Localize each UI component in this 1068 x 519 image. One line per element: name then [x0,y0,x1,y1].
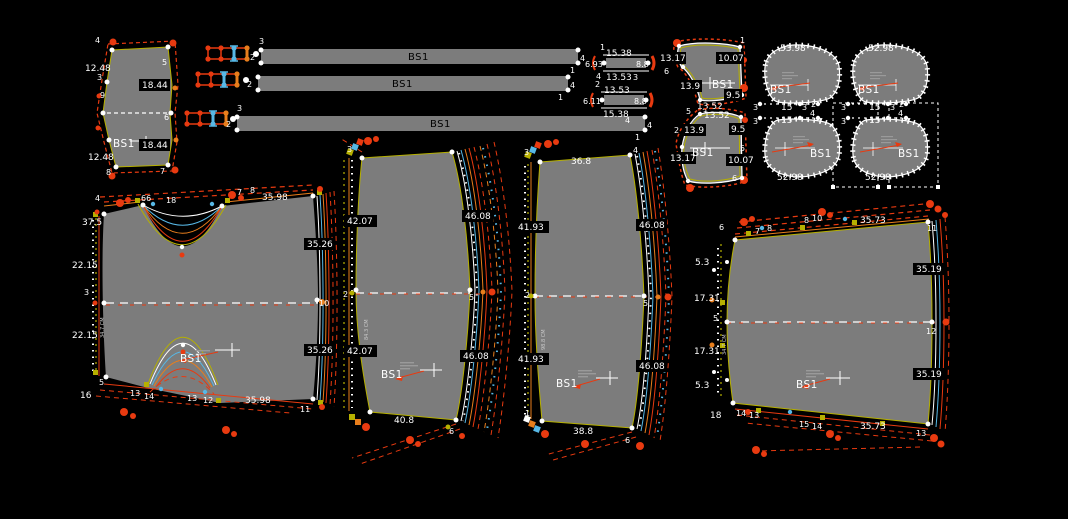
dim-label: 52.98 [865,173,891,183]
pattern-drawing: 3 2 BS1 4 1 2 BS1 4 1 3 2 BS1 4 1 4 12.4… [0,0,1068,519]
point-number: 2 [674,126,679,135]
point-number: 7 [237,188,242,197]
point-number: 5 [469,293,474,302]
dim-label: 13.52 [704,111,730,121]
piece-label: BS1 [408,52,429,63]
dim-label: 35.26 [307,240,333,250]
dim-label: 8.8 [634,97,647,106]
dim-label: 37.5 [82,218,102,228]
point-number: 3 [633,73,638,82]
point-number: 2 [343,290,348,299]
dim-label: 35.19 [916,265,942,275]
dim-label: 46.08 [465,212,491,222]
dim-label: 15 [869,103,880,113]
point-number: 6 [732,174,737,183]
dim-label: 36.8 [571,157,591,167]
point-number: 6 [449,427,454,436]
point-number: 3 [97,73,102,82]
point-number: 3 [753,117,758,126]
point-number: 5 [686,107,691,116]
point-number: 13 [187,394,197,403]
point-number: 8 [250,186,255,195]
point-number: 4 [95,36,100,45]
dim-label: 17.31 [694,294,720,304]
point-number: 8 [804,216,809,225]
point-number: 5 [643,299,648,308]
point-number: 6 [719,223,724,232]
point-number: 6 [164,113,169,122]
dim-label: 52.98 [868,44,894,54]
point-number: 1 [740,36,745,45]
point-number: 3 [753,103,758,112]
point-number: 4 [625,116,630,125]
dim-label: 15 [869,116,880,126]
point-number: 13 [916,429,926,438]
point-number: 3 [841,117,846,126]
small-piece: 4 12.48 3 18.44 9 5 6 BS1 18.44 12.48 8 … [85,36,179,180]
strip-piece-a: 1 15.38 6.93 8.8 13.53 3 4 2 [585,43,654,89]
dim-label: 41.93 [518,223,544,233]
dim-label: 35.73 [860,216,886,226]
piece-label: BS1 [898,148,920,160]
dim-label: 46.08 [463,352,489,362]
point-number: 2 [595,80,600,89]
dim-label: 35.73 [860,422,886,432]
dim-label: 15 [781,116,792,126]
point-number: 4 [95,194,100,203]
point-number: 4 [633,146,638,155]
piece-label: BS1 [556,378,578,390]
point-number: 3 [259,37,264,46]
dim-label: 53.98 [780,44,806,54]
dim-label: 52.98 [777,173,803,183]
point-number: 1 [570,66,575,75]
point-number: 11 [300,405,310,414]
oval-pair-left: 53.98 BS1 3 15 3 2 4 3 15 7 BS1 52.98 [753,44,840,183]
dim-label: 13.9 [684,126,704,136]
bar-outline[interactable] [258,76,568,91]
piece-label: BS1 [113,138,135,150]
dim-label: 5.3 [695,381,709,391]
piece-label: BS1 [430,119,451,130]
dim-label: 35.98 [262,193,288,203]
side-label: 34.7 CM [100,317,106,338]
dim-label: 5.3 [695,258,709,268]
point-number: 13 [130,389,140,398]
point-number: 4 [647,121,652,130]
collar-piece-top: 13.17 10.07 6 13.9 9.5 13.52 5 3 1 BS1 [658,36,748,117]
point-number: 5 [713,314,718,323]
dim-label: 18.44 [142,141,168,151]
point-number: 10 [812,214,822,223]
point-number: 5 [99,378,104,387]
point-number: 10 [319,299,329,308]
dim-label: 42.07 [347,347,373,357]
point-number: 2 [899,100,904,109]
point-number: 2 [525,291,530,300]
point-number: 7 [906,117,911,126]
point-number: 1 [600,43,605,52]
piece-label: BS1 [692,147,714,159]
point-number: 15 [799,420,809,429]
dim-label: 35.98 [245,396,271,406]
piece-label: BS1 [810,148,832,160]
bar-piece-2: 2 BS1 4 1 [247,75,575,103]
point-number: 14 [812,422,822,431]
piece-label: BS1 [858,84,880,96]
point-number: 2 [226,120,231,129]
point-number: 14 [144,392,154,401]
piece-bodice: 4 66 18 7 8 35.98 37.5 22.15 3 22.15 16 … [72,185,337,437]
dim-label: 10.07 [718,54,744,64]
dim-label: 41.93 [518,355,544,365]
dim-label: 16 [80,391,92,401]
point-number: 1 [635,133,640,142]
point-number: 2 [247,80,252,89]
point-number: 2 [250,53,255,62]
dim-label: 10.07 [728,156,754,166]
dim-label: 22.15 [72,331,98,341]
point-number: 3 [347,145,352,154]
point-number: 12 [203,396,213,405]
piece-outline[interactable] [535,155,644,428]
dim-label: 22.15 [72,261,98,271]
dim-label: 35.19 [916,370,942,380]
dim-label: 13.53 [606,73,632,83]
piece-label: BS1 [770,84,792,96]
oval-pair-right: 52.98 BS1 3 15 3 2 4 3 15 7 BS1 52.98 [841,44,928,183]
bar-piece-3: 3 2 BS1 4 1 [226,104,652,142]
point-number: 1 [525,409,530,418]
point-number: 7 [818,117,823,126]
point-number: 66 [141,194,151,203]
point-number: 12 [926,327,936,336]
dim-label: 15.38 [606,49,632,59]
piece-panel-a: 3 42.07 46.08 2 5 42.07 46.08 40.8 6 BS1… [340,136,512,464]
point-number: 8 [767,224,772,233]
dim-label: 12.48 [88,153,114,163]
bar-piece-1: 3 2 BS1 4 1 [250,37,585,75]
point-number: 4 [570,81,575,90]
dim-label: 9.5 [731,125,745,135]
dim-label: 35.26 [307,346,333,356]
piece-label: BS1 [392,79,413,90]
point-number: 5 [740,144,745,153]
point-number: 3 [890,103,895,112]
point-number: 18 [166,196,176,205]
dim-label: 8.8 [636,60,649,69]
point-number: 13 [749,411,759,420]
side-label: 98.8 CM [541,329,547,350]
point-number: 3 [841,103,846,112]
dim-label: 15 [781,103,792,113]
piece-back-panel: 6 7 8 8 10 35.73 11 5.3 17.31 5 17.31 5.… [694,200,950,457]
point-number: 3 [524,148,529,157]
dim-label: 46.08 [639,362,665,372]
piece-label: BS1 [180,353,202,365]
point-number: 6 [625,436,630,445]
side-label: 84.3 CM [364,319,370,340]
dim-label: 42.07 [347,217,373,227]
dim-label: 17.31 [694,347,720,357]
point-number: 6 [664,67,669,76]
dim-label: 6.11 [583,97,601,106]
side-label: 34.7 CM [722,334,728,355]
point-number: 11 [927,224,937,233]
piece-outline[interactable] [727,222,932,424]
dim-label: 13.9 [680,82,700,92]
point-number: 1 [558,93,563,102]
grading-grid-2 [195,71,249,87]
point-number: 3 [802,103,807,112]
piece-outline[interactable] [356,152,470,420]
dim-label: 13.17 [660,54,686,64]
point-number: 5 [162,58,167,67]
point-number: 4 [810,109,815,118]
collar-piece-bottom: 13.52 2 13.9 9.5 5 13.17 10.07 6 BS1 [668,108,754,192]
point-number: 3 [84,288,89,297]
point-number: 7 [755,227,760,236]
point-number: 7 [160,167,165,176]
dim-label: 9.5 [726,91,740,101]
dim-label: 18.44 [142,81,168,91]
dim-label: 38.8 [573,427,593,437]
point-number: 9 [100,91,105,100]
piece-label: BS1 [712,79,734,91]
piece-panel-b: 3 36.8 4 41.93 46.08 2 5 41.93 46.08 1 3… [515,139,672,460]
dim-label: 6.93 [585,60,603,69]
pattern-canvas: 3 2 BS1 4 1 2 BS1 4 1 3 2 BS1 4 1 4 12.4… [0,0,1068,519]
dim-label: 13.53 [604,86,630,96]
point-number: 3 [237,104,242,113]
dim-label: 46.08 [639,221,665,231]
piece-label: BS1 [381,369,403,381]
dim-label: 40.8 [394,416,414,426]
point-number: 8 [106,168,111,177]
point-number: 14 [736,409,746,418]
piece-label: BS1 [796,379,818,391]
point-number: 2 [811,100,816,109]
dim-label: 18 [710,411,722,421]
point-number: 4 [898,109,903,118]
